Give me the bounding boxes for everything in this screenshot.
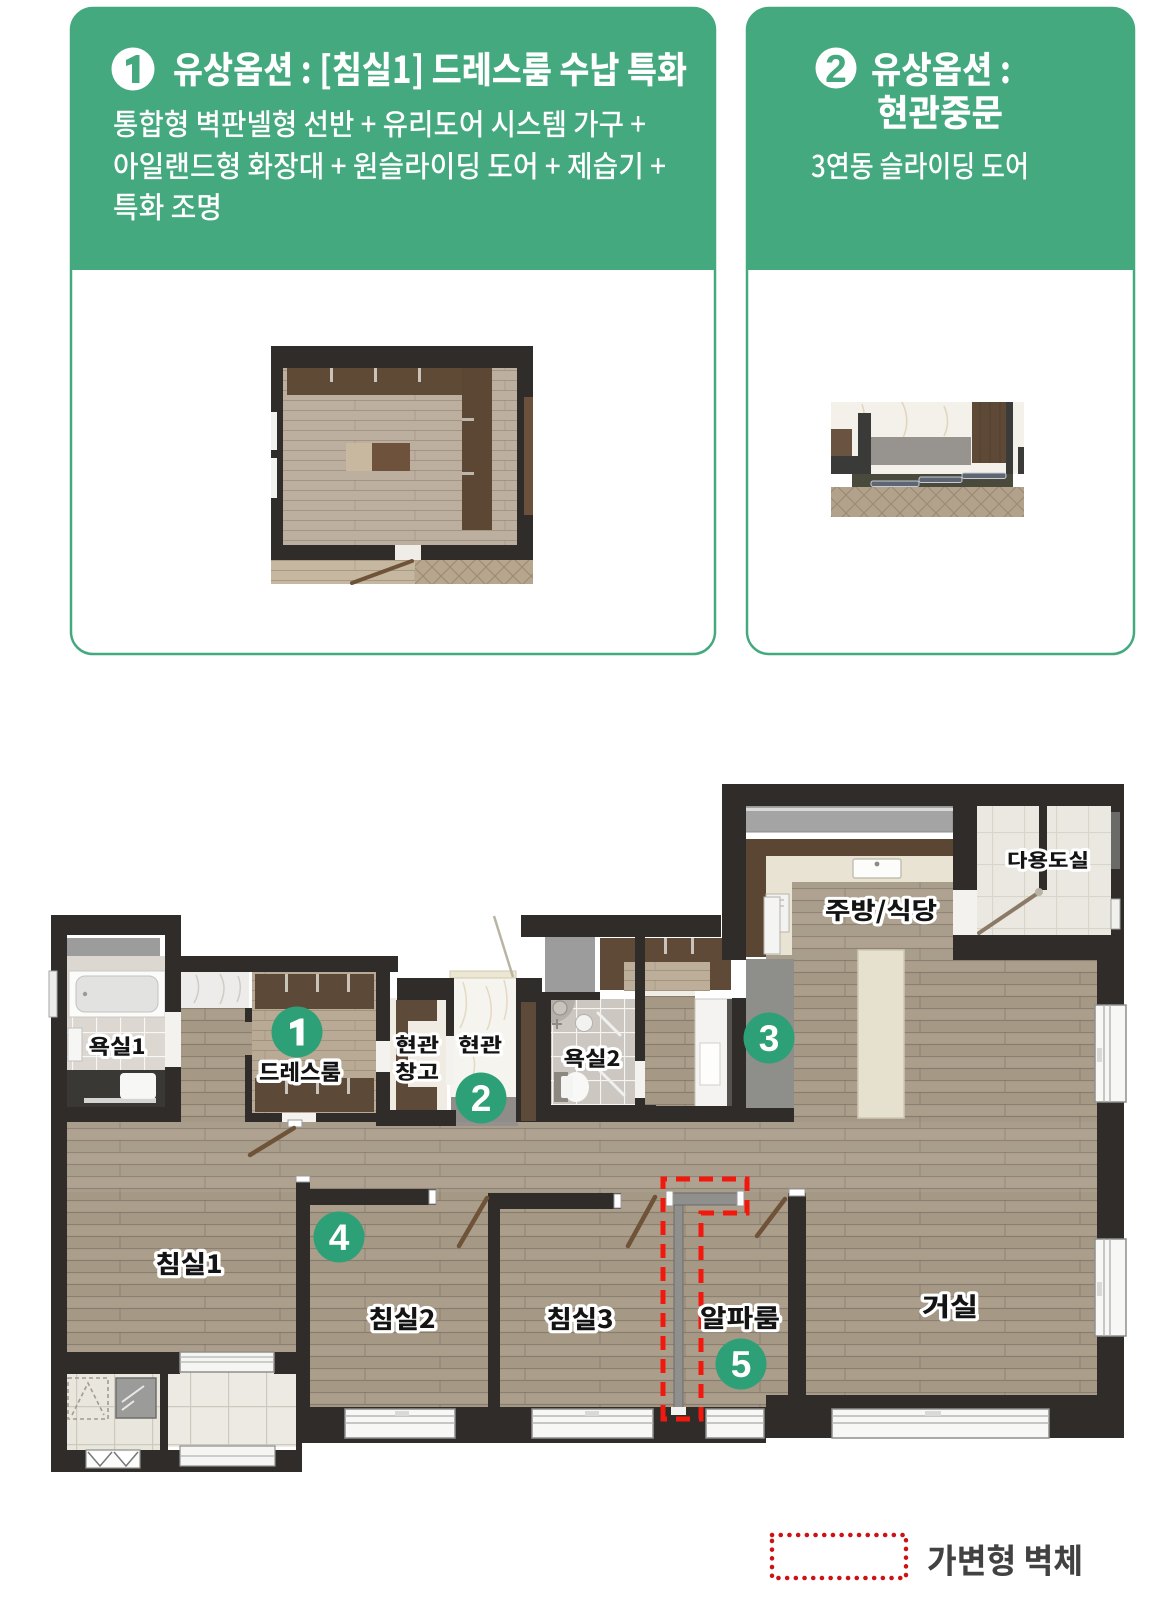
svg-text:5: 5 [731, 1344, 752, 1385]
svg-text:3: 3 [759, 1018, 780, 1059]
svg-text:4: 4 [329, 1217, 350, 1258]
svg-text:2: 2 [471, 1078, 492, 1119]
svg-text:2: 2 [825, 48, 847, 91]
